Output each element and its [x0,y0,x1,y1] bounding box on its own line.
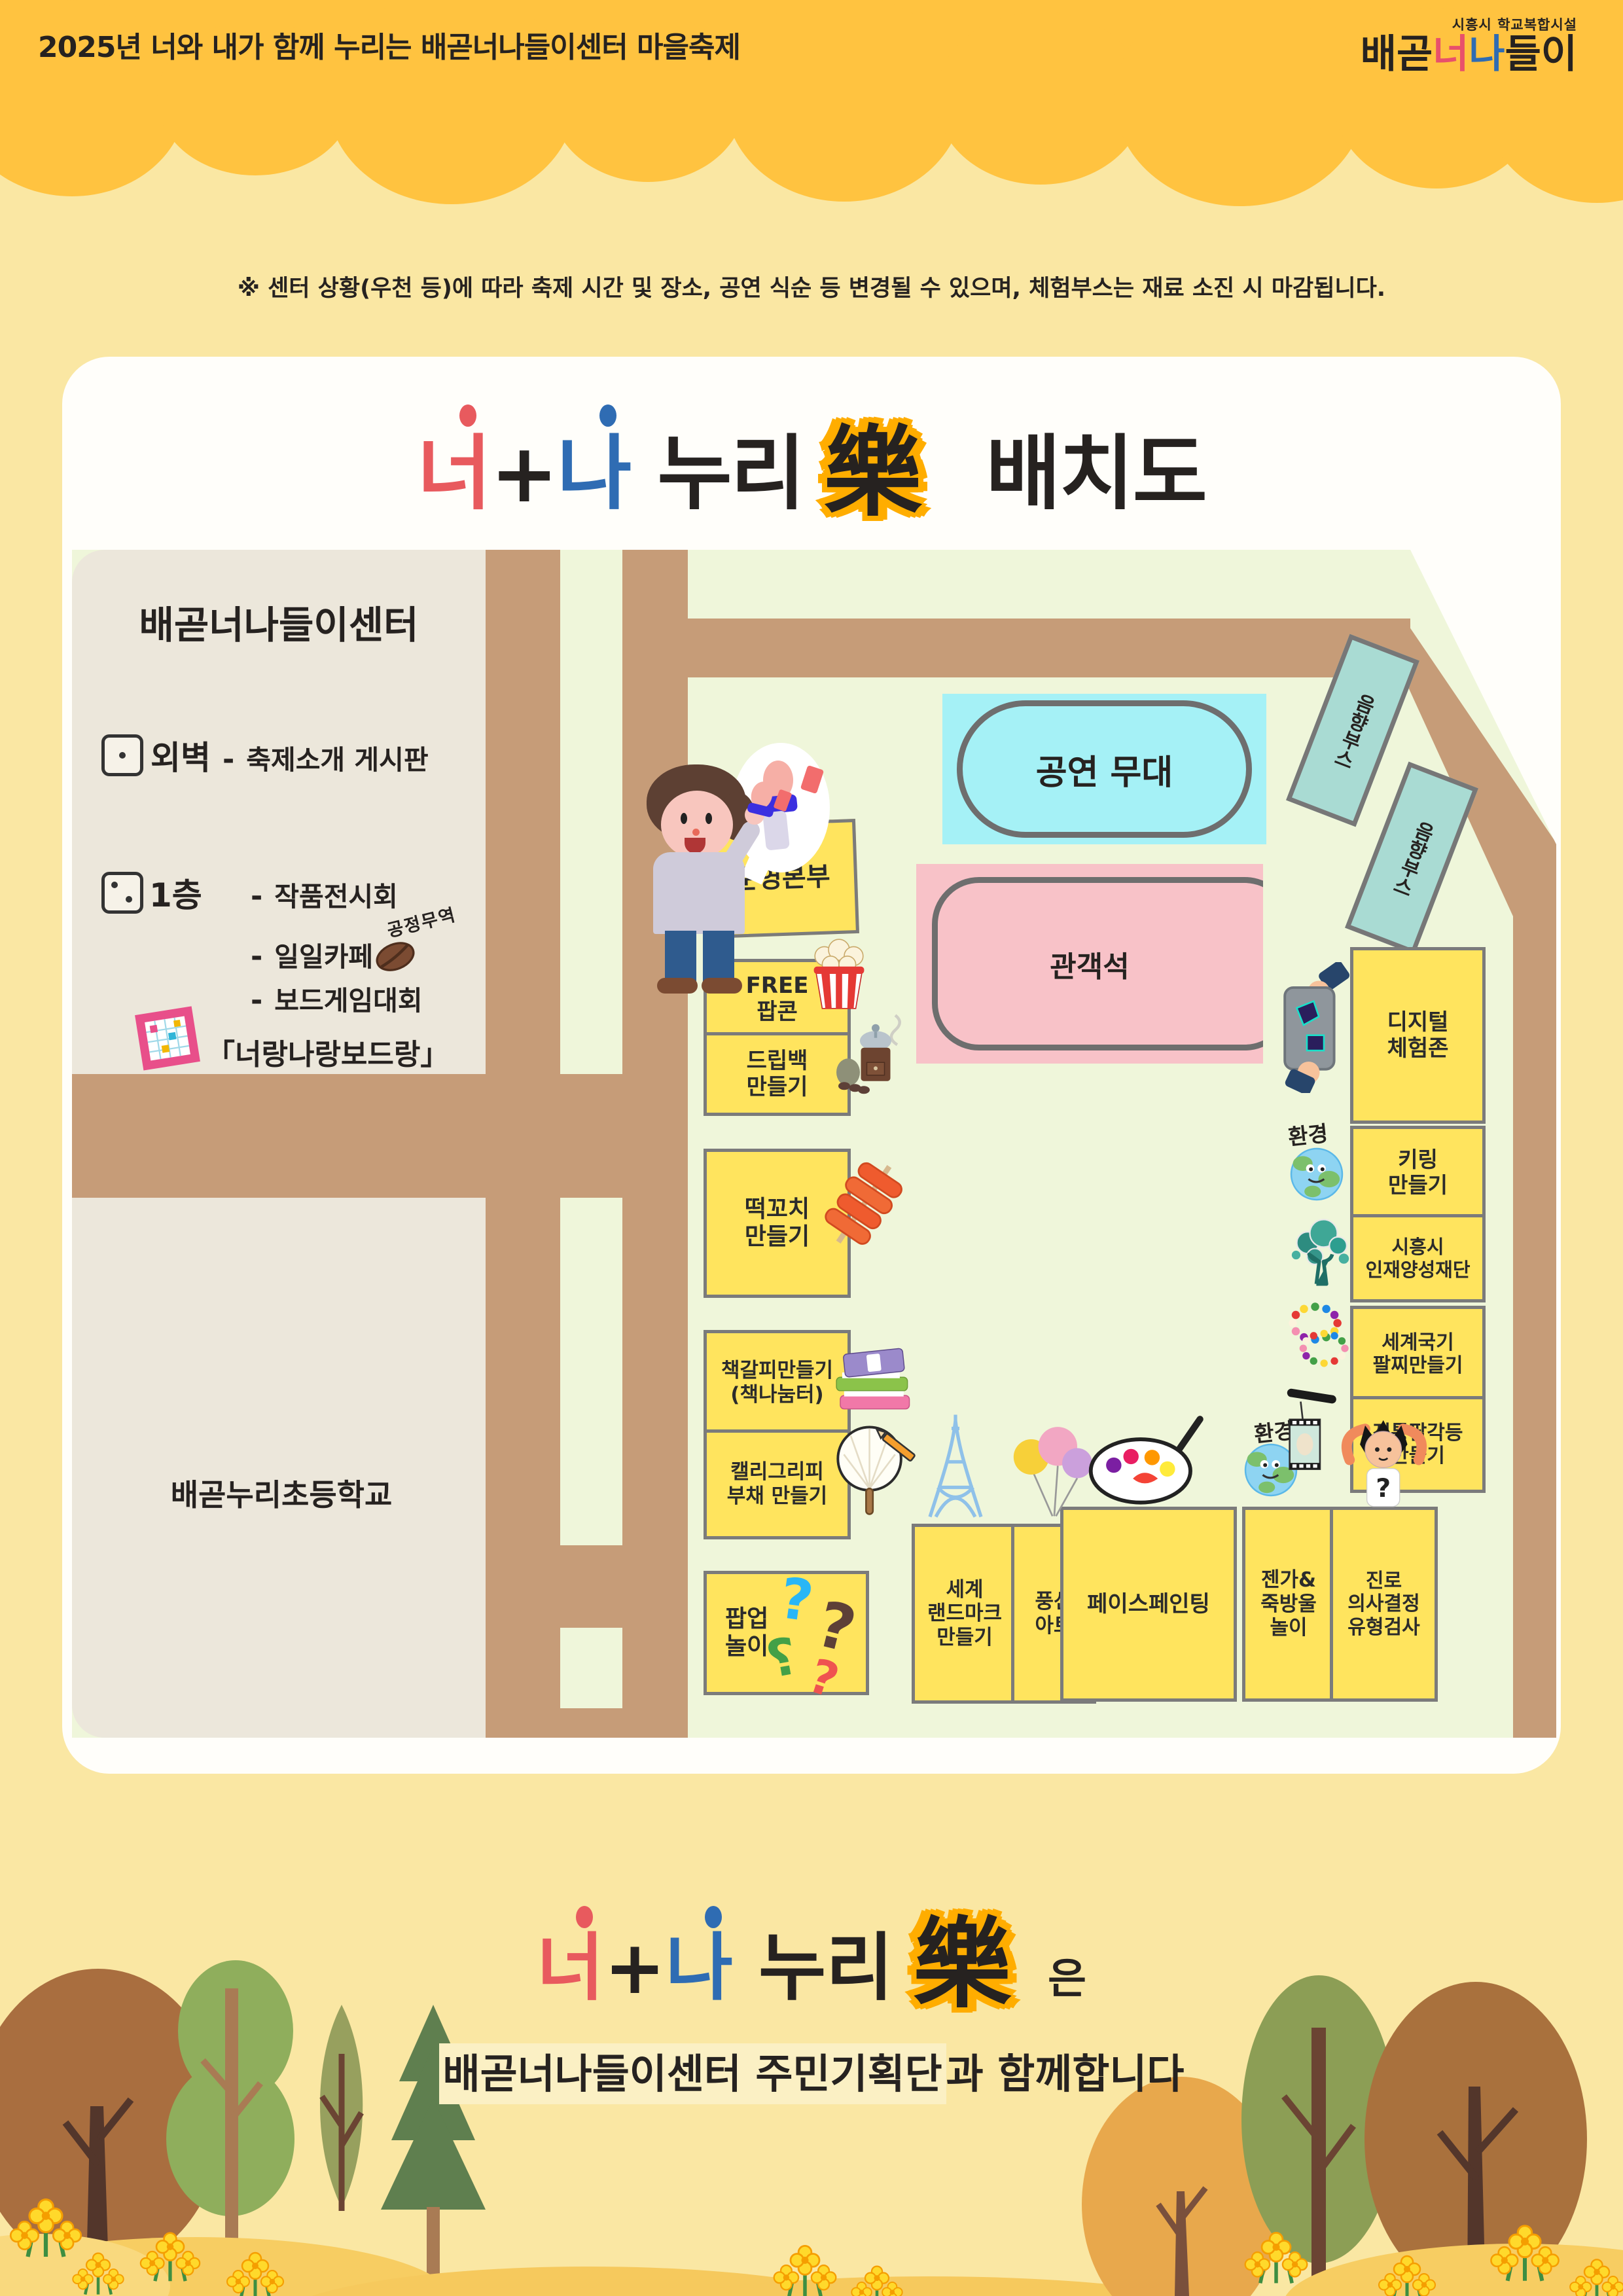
footer-credit-highlight: 배곧너나들이센터 주민기획단 [439,2043,946,2104]
legend-floor-line2: -일일카페 [239,935,373,974]
dice-one-icon [101,734,143,776]
character-shoe-left [657,978,698,994]
legend-wall-desc: 축제소개 게시판 [246,744,428,776]
audience-area: 관객석 [916,864,1263,1064]
audience-label: 관객석 [1050,943,1129,985]
boardgame-image [131,1005,204,1073]
footer-title-plus: + [604,1926,666,2011]
logo-part-deuli: 들이 [1505,31,1577,77]
footer-eun: 은 [1048,1955,1086,2003]
phone-hand-icon [1273,962,1358,1093]
legend-floor-line4: 「너랑나랑보드랑」 [206,1031,449,1073]
footer-title-you: 너 [537,1926,604,2011]
map-main-title: 너+나 누리樂배치도 [62,388,1561,530]
stage-area: 공연 무대 [942,694,1266,844]
booth-jenga: 젠가& 죽방울 놀이 [1242,1507,1335,1702]
coffee-bean-icon [370,936,421,977]
eiffel-tower-icon [916,1412,995,1525]
lantern-icon [1281,1386,1347,1483]
legend-wall-row: 외벽-축제소개 게시판 [151,732,429,779]
logo-part-na: 나 [1469,31,1505,77]
footer-me-dot [705,1906,722,1928]
legend-floor-line3: -보드게임대회 [239,978,423,1018]
coffee-grinder-icon [836,1011,925,1095]
legend-floor-line1: -작품전시회 [239,874,398,914]
logo-part-baegot: 배곧 [1361,31,1433,77]
character-eye-left [681,813,687,824]
legend-floor-label: 1층 [149,869,202,916]
title-you-dot [459,404,476,427]
character-body [653,852,745,934]
festival-poster: 2025년 너와 내가 함께 누리는 배곧너나들이센터 마을축제 시흥시 학교복… [0,0,1623,2296]
booth-keyring: 키링 만들기 [1350,1126,1486,1219]
venue-map: 배곧너나들이센터 외벽-축제소개 게시판 1층 -작품전시회 -일일카페 공정무… [72,550,1556,1738]
footer-you-dot [576,1906,593,1928]
bracelets-icon [1279,1295,1361,1373]
title-nuri: 누리 [657,427,804,521]
character-shoe-right [702,978,742,994]
footer-title-rak: 樂 [913,1908,1011,2022]
logo-part-neo: 너 [1433,31,1469,77]
map-card: 너+나 누리樂배치도 배곧너나들이센터 외벽-축제소개 게시판 [62,357,1561,1774]
title-baechido: 배치도 [986,427,1206,521]
title-rak: 樂 [824,416,921,530]
school-building [72,1198,486,1738]
balloons-icon [1007,1420,1095,1524]
stage-label: 공연 무대 [1036,745,1173,794]
footer-title-nuri: 누리 [758,1926,893,2011]
school-name: 배곧누리초등학교 [98,1471,465,1515]
center-logo: 시흥시 학교복합시설 배곧너나들이 [1361,14,1577,75]
character-nose [692,829,700,836]
svg-text:?: ? [1376,1473,1391,1503]
footer-credit-line: 배곧너나들이센터 주민기획단과 함께합니다 [0,2041,1623,2100]
footer-title: 너+나 누리樂은 [0,1880,1623,2022]
books-icon [834,1342,916,1414]
thinking-kid-icon: ? [1332,1415,1436,1510]
title-me-dot [599,404,616,427]
tree-icon-foundation [1286,1215,1355,1288]
header-title: 2025년 너와 내가 함께 누리는 배곧너나들이센터 마을축제 [38,24,740,65]
dice-two-icon [101,872,143,914]
footer-credit-rest: 과 함께합니다 [946,2050,1185,2098]
title-me: 나 [557,427,630,521]
tteok-skewer-icon [815,1155,913,1253]
booth-landmark: 세계 랜드마크 만들기 [912,1524,1018,1704]
earth-icon-keyring [1288,1145,1346,1203]
legend-dash: - [223,743,234,776]
logo-name-text: 배곧너나들이 [1361,34,1577,75]
announcer-character [635,713,857,988]
title-you: 너 [417,427,490,521]
booth-digital-zone: 디지털 체험존 [1350,947,1486,1124]
booth-facepainting: 페이스페인팅 [1060,1507,1237,1702]
title-plus: + [490,427,557,521]
character-leg-right [703,931,734,982]
weather-notice: ※ 센터 상황(우천 등)에 따라 축제 시간 및 장소, 공연 식순 등 변경… [0,270,1623,303]
booth-dripbag: 드립백 만들기 [704,1032,851,1116]
legend-wall-label: 외벽 [151,739,211,777]
booth-flag-bracelet: 세계국기 팔찌만들기 [1350,1306,1486,1403]
fan-icon [825,1420,919,1518]
center-name: 배곧너나들이센터 [92,594,466,649]
character-eye-right [705,813,712,824]
footer-title-me: 나 [666,1926,733,2011]
booth-career-test: 진로 의사결정 유형검사 [1330,1507,1438,1702]
palette-icon [1083,1415,1217,1507]
booth-foundation: 시흥시 인재양성재단 [1350,1214,1486,1302]
character-leg-left [665,931,696,982]
